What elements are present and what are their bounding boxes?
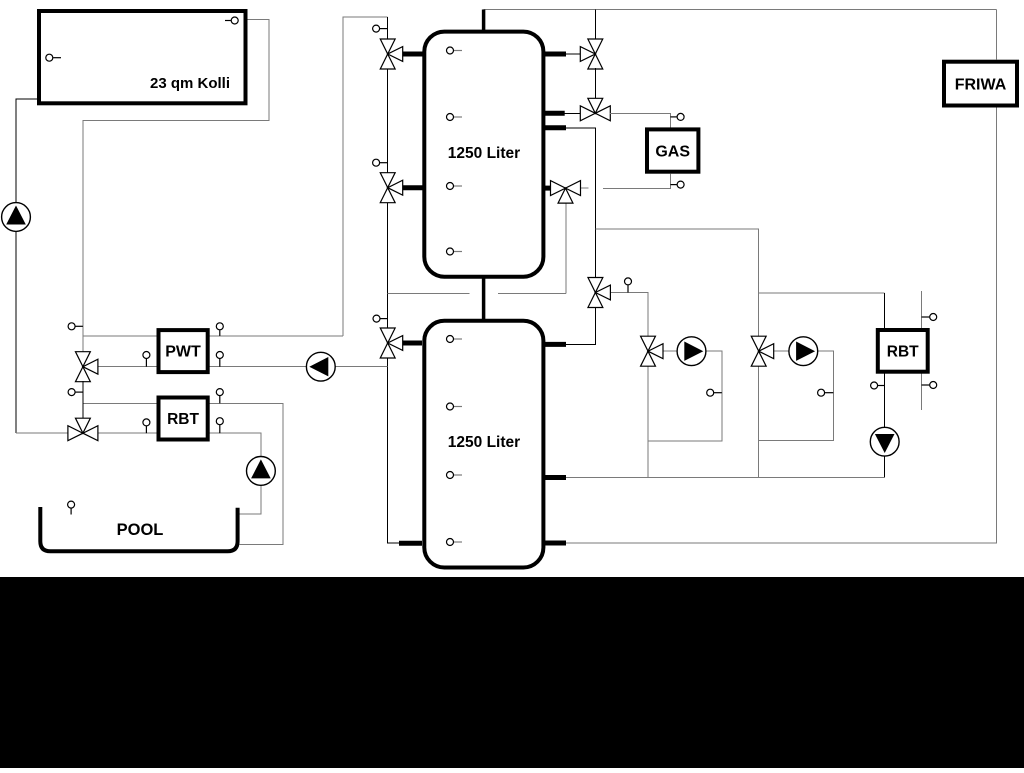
svg-text:PWT: PWT <box>165 344 201 361</box>
svg-text:1250 Liter: 1250 Liter <box>448 434 520 451</box>
svg-text:FRIWA: FRIWA <box>955 76 1007 93</box>
svg-text:POOL: POOL <box>117 521 164 539</box>
svg-text:1250 Liter: 1250 Liter <box>448 145 520 162</box>
svg-text:23 qm Kolli: 23 qm Kolli <box>150 75 230 92</box>
svg-text:RBT: RBT <box>167 411 199 428</box>
svg-text:GAS: GAS <box>655 143 690 160</box>
svg-text:RBT: RBT <box>887 344 919 361</box>
